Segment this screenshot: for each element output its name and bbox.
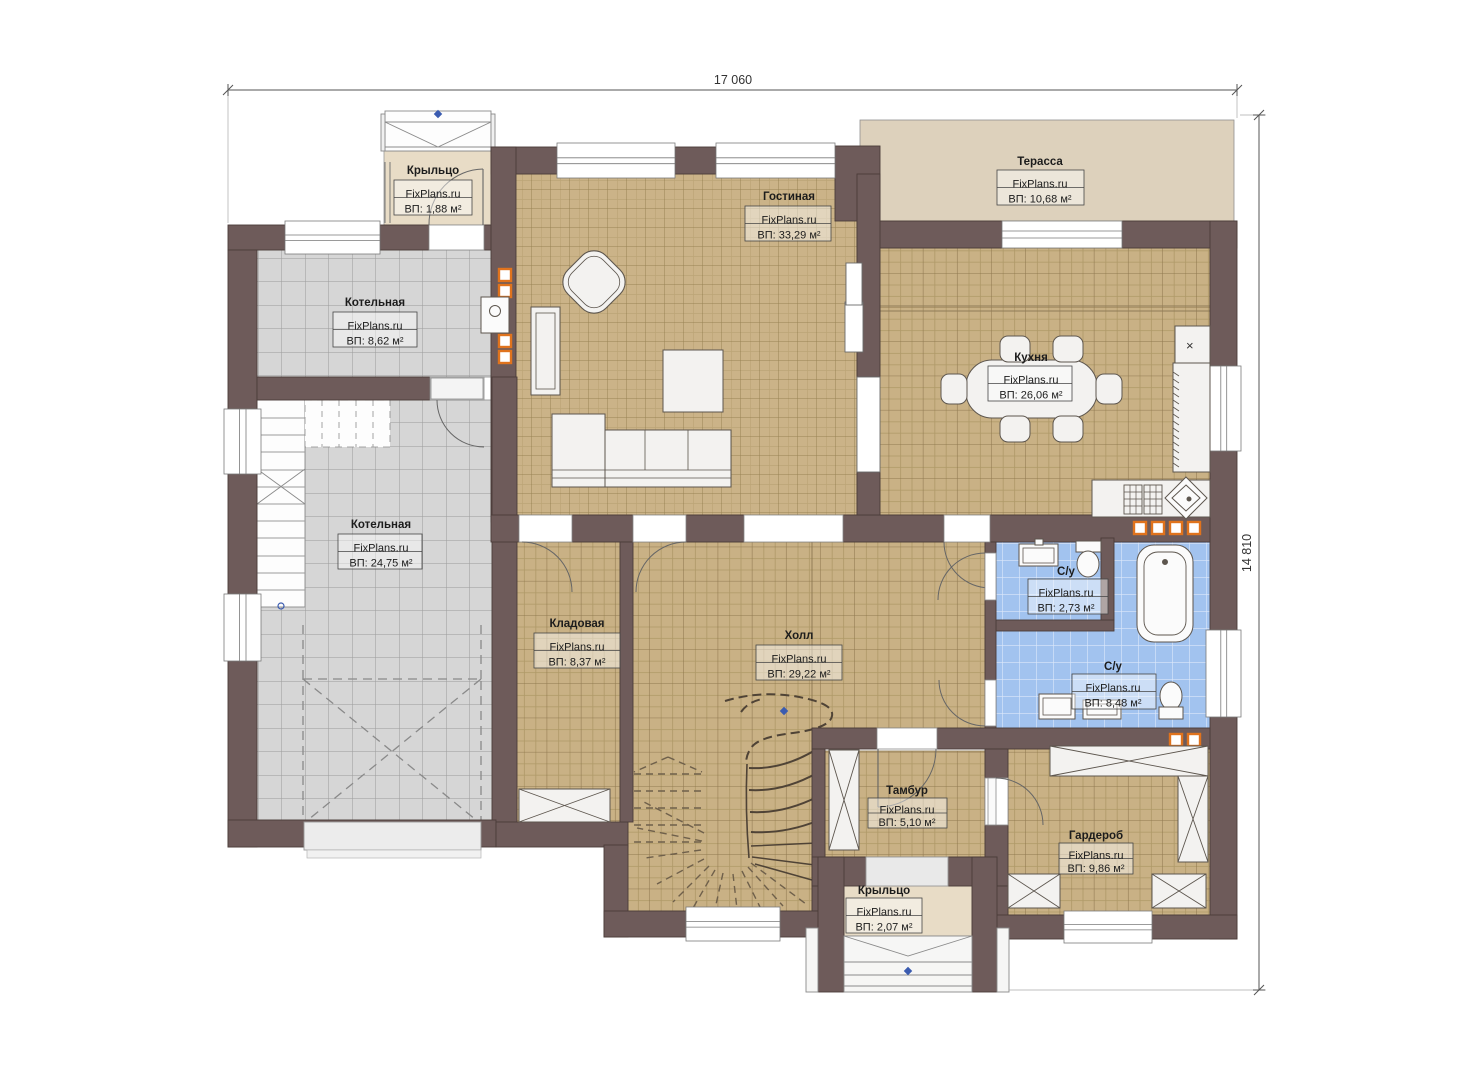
svg-text:ВП: 8,37 м²: ВП: 8,37 м² (548, 656, 605, 668)
svg-text:Котельная: Котельная (345, 297, 405, 309)
svg-text:Кладовая: Кладовая (549, 618, 604, 630)
svg-text:FixPlans.ru: FixPlans.ru (761, 215, 816, 227)
svg-text:ВП: 2,73 м²: ВП: 2,73 м² (1037, 602, 1094, 614)
svg-text:FixPlans.ru: FixPlans.ru (549, 642, 604, 654)
svg-text:FixPlans.ru: FixPlans.ru (771, 654, 826, 666)
svg-text:FixPlans.ru: FixPlans.ru (1012, 179, 1067, 191)
svg-text:ВП: 5,10 м²: ВП: 5,10 м² (878, 817, 935, 829)
svg-text:FixPlans.ru: FixPlans.ru (856, 907, 911, 919)
svg-text:FixPlans.ru: FixPlans.ru (353, 543, 408, 555)
svg-text:Тамбур: Тамбур (886, 785, 928, 797)
svg-text:С/у: С/у (1104, 661, 1123, 673)
svg-text:Крыльцо: Крыльцо (858, 885, 910, 897)
svg-text:ВП: 26,06 м²: ВП: 26,06 м² (999, 389, 1063, 401)
svg-text:FixPlans.ru: FixPlans.ru (1003, 375, 1058, 387)
svg-text:Терасса: Терасса (1017, 156, 1063, 168)
svg-text:×: × (1186, 338, 1194, 353)
svg-text:14 810: 14 810 (1240, 534, 1254, 572)
svg-text:Кухня: Кухня (1014, 352, 1048, 364)
svg-text:Котельная: Котельная (351, 519, 411, 531)
svg-text:FixPlans.ru: FixPlans.ru (405, 189, 460, 201)
svg-text:ВП: 2,07 м²: ВП: 2,07 м² (855, 921, 912, 933)
svg-text:ВП: 33,29 м²: ВП: 33,29 м² (757, 229, 821, 241)
svg-text:ВП: 10,68 м²: ВП: 10,68 м² (1008, 193, 1072, 205)
svg-text:FixPlans.ru: FixPlans.ru (879, 805, 934, 817)
svg-text:ВП: 24,75 м²: ВП: 24,75 м² (349, 557, 413, 569)
svg-text:Гардероб: Гардероб (1069, 830, 1123, 842)
svg-text:ВП: 29,22 м²: ВП: 29,22 м² (767, 668, 831, 680)
svg-text:С/у: С/у (1057, 566, 1076, 578)
svg-text:Гостиная: Гостиная (763, 191, 815, 203)
svg-text:ВП: 8,62 м²: ВП: 8,62 м² (346, 335, 403, 347)
svg-text:FixPlans.ru: FixPlans.ru (347, 321, 402, 333)
svg-text:Крыльцо: Крыльцо (407, 165, 459, 177)
svg-text:Холл: Холл (785, 630, 814, 642)
svg-text:ВП: 9,86 м²: ВП: 9,86 м² (1067, 863, 1124, 875)
svg-text:FixPlans.ru: FixPlans.ru (1085, 683, 1140, 695)
svg-text:FixPlans.ru: FixPlans.ru (1038, 588, 1093, 600)
svg-text:ВП: 1,88 м²: ВП: 1,88 м² (404, 203, 461, 215)
svg-text:ВП: 8,48 м²: ВП: 8,48 м² (1084, 697, 1141, 709)
svg-text:17 060: 17 060 (714, 73, 752, 87)
svg-text:FixPlans.ru: FixPlans.ru (1068, 850, 1123, 862)
